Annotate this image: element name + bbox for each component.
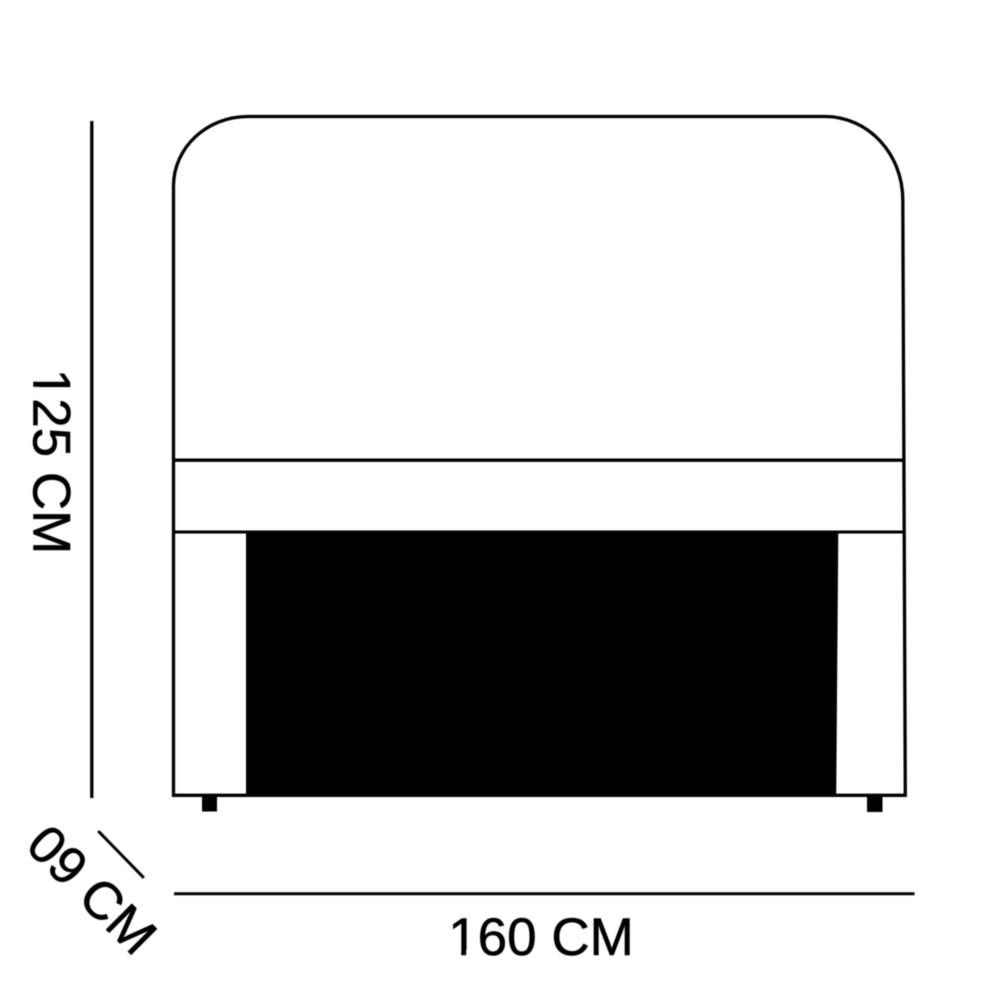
svg-text:160 CM: 160 CM — [448, 908, 634, 967]
svg-text:125 CM: 125 CM — [22, 369, 81, 555]
